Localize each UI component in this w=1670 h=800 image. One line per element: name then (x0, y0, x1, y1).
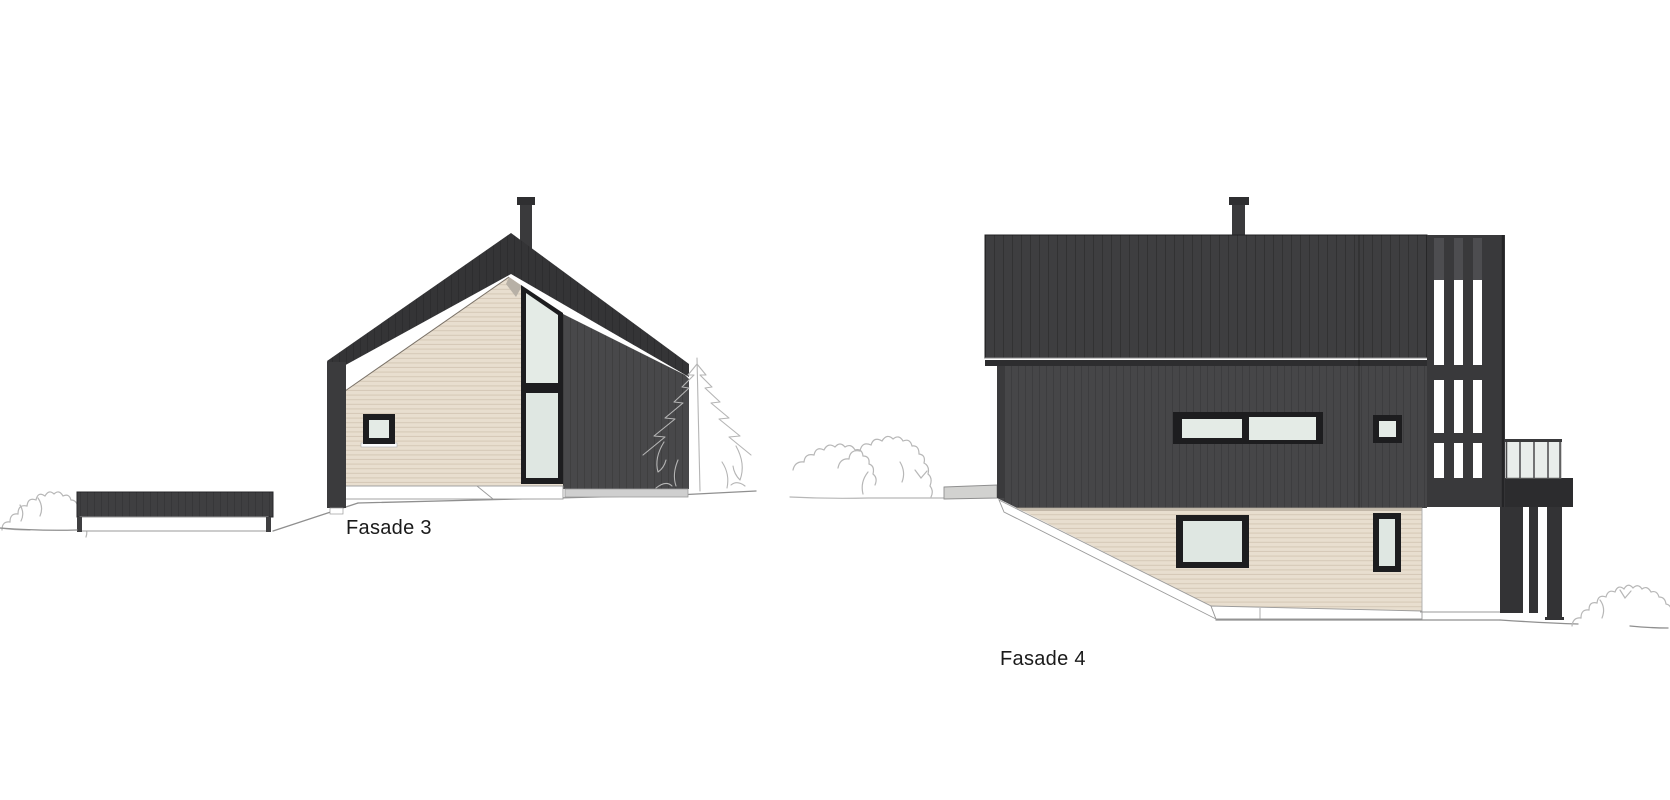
elevation-canvas: Fasade 3 (0, 0, 1670, 800)
shrub-sketch-right (1572, 585, 1670, 644)
ribbon-window-glass-left (1182, 419, 1242, 438)
small-window (361, 414, 397, 447)
roof-plane-ribbing (985, 235, 1427, 358)
upper-small-window (1373, 415, 1402, 443)
railing-top-rail (1505, 439, 1562, 442)
concrete-step (944, 485, 997, 499)
slat-screen (1427, 235, 1505, 507)
corner-post-foot (330, 508, 343, 514)
lower-narrow-window-glass (1379, 519, 1395, 566)
annex-base (80, 517, 268, 531)
tall-gable-window (521, 285, 563, 484)
fasade-4-label: Fasade 4 (1000, 648, 1086, 670)
annex-post-left (77, 517, 82, 532)
shrub-sketch-left-of-house (790, 436, 944, 498)
lower-large-window-glass (1183, 521, 1242, 562)
corner-post (327, 362, 346, 508)
annex-ribbing (77, 492, 273, 517)
tall-window-lower-glass (526, 393, 558, 478)
fasade-3-drawing: Fasade 3 (0, 197, 756, 539)
upper-ribbon-window (1173, 412, 1323, 444)
lower-narrow-window (1373, 513, 1401, 572)
eave-fascia (985, 360, 1427, 366)
dark-wall-plinth (565, 489, 688, 497)
ground-lines-right (1216, 620, 1668, 628)
fasade-3-label: Fasade 3 (346, 517, 432, 539)
upper-small-window-glass (1379, 421, 1396, 437)
annex-structure (77, 492, 273, 532)
small-window-glass (369, 420, 389, 438)
annex-post-right (266, 517, 271, 532)
fasade-4-drawing: Fasade 4 (790, 197, 1670, 670)
upper-wall-corner-trim (997, 366, 1005, 498)
lower-large-window (1176, 515, 1249, 568)
elevation-sheet: Fasade 3 (0, 0, 1670, 800)
foundation-strip (345, 486, 563, 499)
ribbon-window-glass-right (1249, 417, 1316, 440)
balcony-railing (1505, 439, 1562, 478)
chimney-2 (1229, 197, 1249, 238)
beige-top-shadow (1017, 508, 1422, 511)
balcony-posts (1500, 507, 1564, 620)
